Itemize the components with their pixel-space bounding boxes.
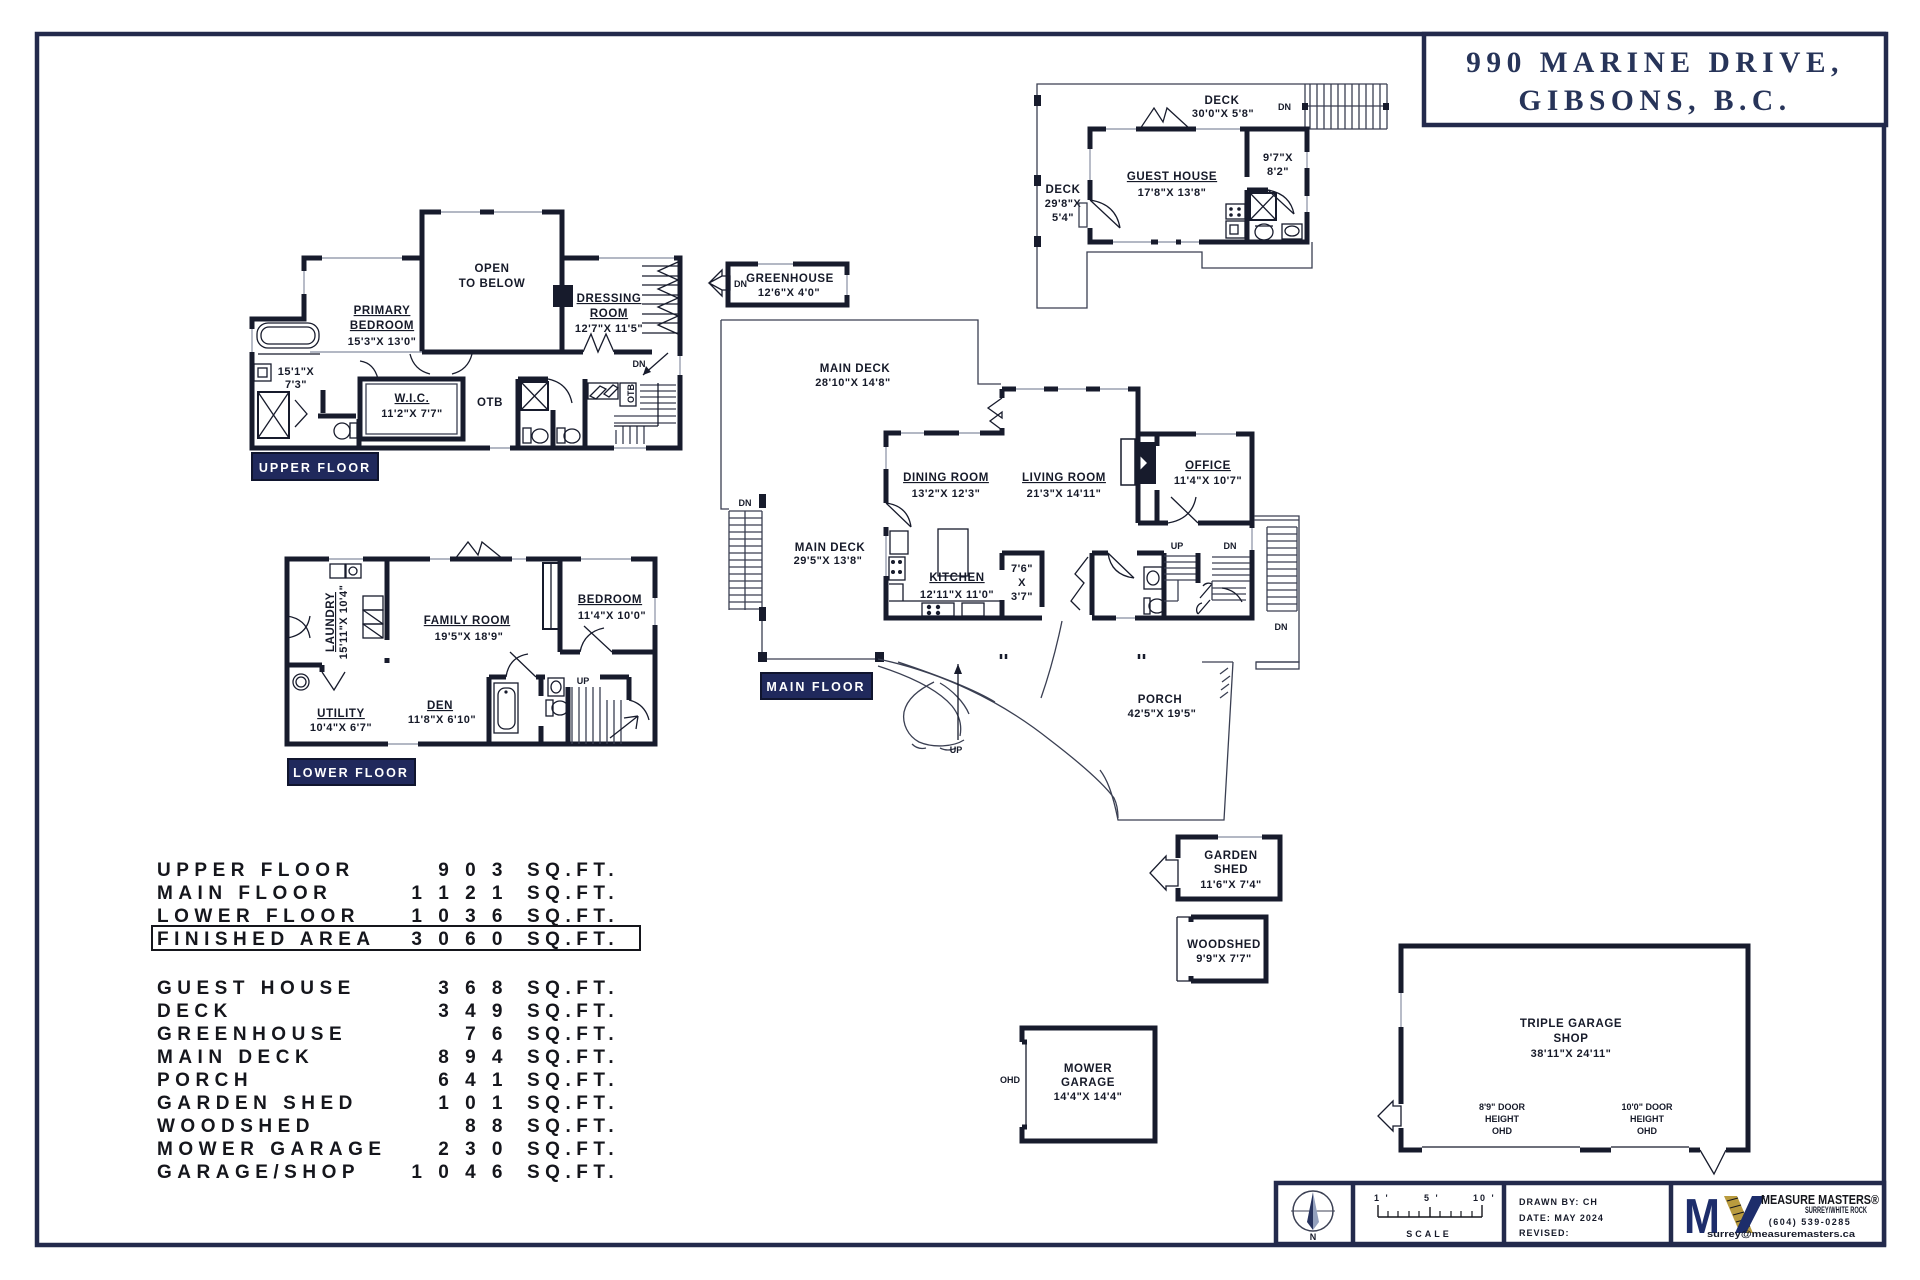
svg-text:1 0 4 6: 1 0 4 6 — [411, 1162, 508, 1183]
svg-text:8'2": 8'2" — [1267, 166, 1289, 178]
svg-text:GREENHOUSE: GREENHOUSE — [157, 1024, 347, 1045]
svg-text:surrey@measuremasters.ca: surrey@measuremasters.ca — [1707, 1229, 1856, 1239]
svg-text:29'5"X 13'8": 29'5"X 13'8" — [794, 555, 863, 567]
svg-text:DATE: MAY 2024: DATE: MAY 2024 — [1519, 1213, 1604, 1223]
svg-text:DECK: DECK — [1046, 184, 1081, 196]
svg-text:15'11"X 10'4": 15'11"X 10'4" — [338, 585, 350, 660]
svg-text:11'4"X 10'7": 11'4"X 10'7" — [1174, 475, 1242, 487]
svg-text:8'9" DOOR: 8'9" DOOR — [1479, 1102, 1525, 1112]
svg-text:1 0 3 6: 1 0 3 6 — [411, 906, 508, 927]
svg-text:9'7"X: 9'7"X — [1263, 152, 1293, 164]
svg-text:1 1 2 1: 1 1 2 1 — [411, 883, 508, 904]
svg-text:SQ.FT.: SQ.FT. — [527, 860, 619, 881]
svg-text:UP: UP — [950, 745, 963, 755]
svg-text:WOODSHED: WOODSHED — [157, 1116, 315, 1137]
svg-text:38'11"X 24'11": 38'11"X 24'11" — [1531, 1048, 1612, 1060]
svg-text:DECK: DECK — [1205, 95, 1240, 107]
svg-text:2 3 0: 2 3 0 — [438, 1139, 508, 1160]
svg-text:MAIN DECK: MAIN DECK — [157, 1047, 314, 1068]
svg-text:SQ.FT.: SQ.FT. — [527, 929, 619, 950]
svg-text:BEDROOM: BEDROOM — [578, 594, 642, 606]
svg-text:LAUNDRY: LAUNDRY — [325, 592, 337, 652]
svg-text:11'2"X 7'7": 11'2"X 7'7" — [381, 408, 443, 420]
svg-text:3 4 9: 3 4 9 — [438, 1001, 508, 1022]
svg-text:10'0" DOOR: 10'0" DOOR — [1622, 1102, 1673, 1112]
svg-text:DINING ROOM: DINING ROOM — [903, 472, 989, 484]
svg-text:LOWER FLOOR: LOWER FLOOR — [293, 766, 409, 780]
svg-text:14'4"X 14'4": 14'4"X 14'4" — [1054, 1091, 1123, 1103]
svg-text:OFFICE: OFFICE — [1185, 460, 1231, 472]
svg-text:15'3"X 13'0": 15'3"X 13'0" — [348, 336, 417, 348]
svg-text:3 0 6 0: 3 0 6 0 — [411, 929, 508, 950]
svg-text:7 6: 7 6 — [465, 1024, 508, 1045]
svg-text:990 MARINE DRIVE,: 990 MARINE DRIVE, — [1466, 47, 1844, 79]
svg-text:12'6"X 4'0": 12'6"X 4'0" — [758, 287, 820, 299]
svg-text:19'5"X 18'9": 19'5"X 18'9" — [435, 631, 504, 643]
svg-text:DECK: DECK — [157, 1001, 233, 1022]
svg-text:7'3": 7'3" — [285, 379, 307, 391]
svg-text:3 6 8: 3 6 8 — [438, 978, 508, 999]
svg-text:6 4 1: 6 4 1 — [438, 1070, 508, 1091]
svg-text:MOWER: MOWER — [1064, 1063, 1112, 1075]
svg-text:LOWER FLOOR: LOWER FLOOR — [157, 906, 360, 927]
svg-text:SQ.FT.: SQ.FT. — [527, 1162, 619, 1183]
svg-text:W.I.C.: W.I.C. — [395, 393, 430, 405]
svg-text:SQ.FT.: SQ.FT. — [527, 883, 619, 904]
svg-text:PRIMARY: PRIMARY — [354, 305, 411, 317]
svg-text:SQ.FT.: SQ.FT. — [527, 1047, 619, 1068]
svg-text:3'7": 3'7" — [1011, 591, 1033, 603]
svg-text:SHED: SHED — [1214, 864, 1248, 876]
svg-text:OTB: OTB — [477, 397, 503, 409]
svg-text:OHD: OHD — [1637, 1126, 1658, 1136]
svg-text:UPPER FLOOR: UPPER FLOOR — [259, 461, 371, 475]
svg-text:28'10"X 14'8": 28'10"X 14'8" — [815, 377, 890, 389]
svg-text:GARAGE: GARAGE — [1061, 1077, 1115, 1089]
svg-text:X: X — [1018, 577, 1026, 589]
svg-text:UP: UP — [577, 676, 590, 686]
svg-text:DN: DN — [1278, 102, 1291, 112]
svg-text:OHD: OHD — [1000, 1075, 1021, 1085]
svg-text:PORCH: PORCH — [1138, 694, 1183, 706]
svg-text:1 0 1: 1 0 1 — [438, 1093, 508, 1114]
svg-text:DN: DN — [633, 359, 646, 369]
svg-text:SQ.FT.: SQ.FT. — [527, 1024, 619, 1045]
svg-text:17'8"X 13'8": 17'8"X 13'8" — [1138, 187, 1207, 199]
svg-text:MAIN DECK: MAIN DECK — [820, 363, 891, 375]
svg-text:8 8: 8 8 — [465, 1116, 508, 1137]
svg-text:UPPER FLOOR: UPPER FLOOR — [157, 860, 355, 881]
svg-text:SQ.FT.: SQ.FT. — [527, 1139, 619, 1160]
svg-text:11'8"X 6'10": 11'8"X 6'10" — [408, 714, 476, 726]
svg-text:HEIGHT: HEIGHT — [1485, 1114, 1520, 1124]
svg-text:11'6"X 7'4": 11'6"X 7'4" — [1200, 879, 1262, 891]
svg-text:DN: DN — [734, 279, 747, 289]
svg-text:15'1"X: 15'1"X — [278, 366, 315, 378]
svg-text:DRESSING: DRESSING — [577, 293, 642, 305]
svg-text:13'2"X 12'3": 13'2"X 12'3" — [912, 488, 981, 500]
svg-text:SQ.FT.: SQ.FT. — [527, 1093, 619, 1114]
svg-text:GIBSONS, B.C.: GIBSONS, B.C. — [1518, 85, 1791, 117]
svg-text:OHD: OHD — [1492, 1126, 1513, 1136]
svg-text:HEIGHT: HEIGHT — [1630, 1114, 1665, 1124]
svg-text:DEN: DEN — [427, 700, 453, 712]
svg-text:MAIN DECK: MAIN DECK — [795, 542, 866, 554]
svg-text:FINISHED AREA: FINISHED AREA — [157, 929, 376, 950]
svg-text:ROOM: ROOM — [590, 308, 628, 320]
svg-text:TRIPLE GARAGE: TRIPLE GARAGE — [1520, 1018, 1622, 1030]
svg-text:SQ.FT.: SQ.FT. — [527, 1070, 619, 1091]
svg-text:BEDROOM: BEDROOM — [350, 320, 414, 332]
svg-text:REVISED:: REVISED: — [1519, 1228, 1570, 1238]
svg-text:LIVING ROOM: LIVING ROOM — [1022, 472, 1106, 484]
svg-text:UTILITY: UTILITY — [317, 708, 365, 720]
svg-text:12'7"X 11'5": 12'7"X 11'5" — [575, 323, 643, 335]
svg-text:12'11"X 11'0": 12'11"X 11'0" — [920, 589, 994, 601]
svg-text:OPEN: OPEN — [475, 263, 510, 275]
svg-text:OTB: OTB — [626, 384, 636, 403]
svg-text:30'0"X 5'8": 30'0"X 5'8" — [1192, 108, 1254, 120]
svg-text:SQ.FT.: SQ.FT. — [527, 1001, 619, 1022]
svg-text:(604) 539-0285: (604) 539-0285 — [1769, 1217, 1852, 1227]
svg-text:DRAWN BY: CH: DRAWN BY: CH — [1519, 1197, 1598, 1207]
svg-text:PORCH: PORCH — [157, 1070, 253, 1091]
svg-text:9'9"X 7'7": 9'9"X 7'7" — [1196, 953, 1252, 965]
svg-text:GARDEN: GARDEN — [1204, 850, 1257, 862]
svg-text:5'4": 5'4" — [1052, 212, 1074, 224]
svg-text:29'8"X: 29'8"X — [1045, 198, 1082, 210]
svg-text:42'5"X 19'5": 42'5"X 19'5" — [1128, 708, 1197, 720]
svg-text:GARAGE/SHOP: GARAGE/SHOP — [157, 1162, 360, 1183]
svg-text:MAIN FLOOR: MAIN FLOOR — [157, 883, 332, 904]
svg-text:8 9 4: 8 9 4 — [438, 1047, 508, 1068]
svg-text:GUEST HOUSE: GUEST HOUSE — [1127, 171, 1217, 183]
svg-text:10 ': 10 ' — [1473, 1193, 1496, 1203]
svg-text:10'4"X 6'7": 10'4"X 6'7" — [310, 722, 372, 734]
svg-text:DN: DN — [1224, 541, 1237, 551]
svg-text:5 ': 5 ' — [1424, 1193, 1440, 1203]
svg-text:9 0 3: 9 0 3 — [438, 860, 508, 881]
svg-text:FAMILY ROOM: FAMILY ROOM — [424, 615, 510, 627]
svg-text:N: N — [1310, 1232, 1317, 1242]
svg-text:DN: DN — [739, 498, 752, 508]
svg-text:SQ.FT.: SQ.FT. — [527, 978, 619, 999]
svg-text:WOODSHED: WOODSHED — [1187, 939, 1261, 951]
svg-text:1 ': 1 ' — [1374, 1193, 1390, 1203]
svg-text:SCALE: SCALE — [1406, 1229, 1452, 1239]
svg-text:DN: DN — [1275, 622, 1288, 632]
svg-text:GUEST HOUSE: GUEST HOUSE — [157, 978, 356, 999]
svg-text:11'4"X 10'0": 11'4"X 10'0" — [578, 610, 646, 622]
svg-text:MOWER GARAGE: MOWER GARAGE — [157, 1139, 387, 1160]
svg-text:UP: UP — [1171, 541, 1184, 551]
svg-text:7'6": 7'6" — [1011, 563, 1033, 575]
svg-text:SHOP: SHOP — [1554, 1033, 1589, 1045]
svg-text:21'3"X 14'11": 21'3"X 14'11" — [1027, 488, 1102, 500]
svg-text:TO BELOW: TO BELOW — [459, 278, 526, 290]
svg-text:SQ.FT.: SQ.FT. — [527, 906, 619, 927]
svg-text:SQ.FT.: SQ.FT. — [527, 1116, 619, 1137]
svg-text:SURREY/WHITE ROCK: SURREY/WHITE ROCK — [1805, 1205, 1867, 1215]
svg-text:GREENHOUSE: GREENHOUSE — [746, 273, 834, 285]
svg-text:GARDEN SHED: GARDEN SHED — [157, 1093, 358, 1114]
svg-text:MAIN FLOOR: MAIN FLOOR — [766, 680, 865, 694]
